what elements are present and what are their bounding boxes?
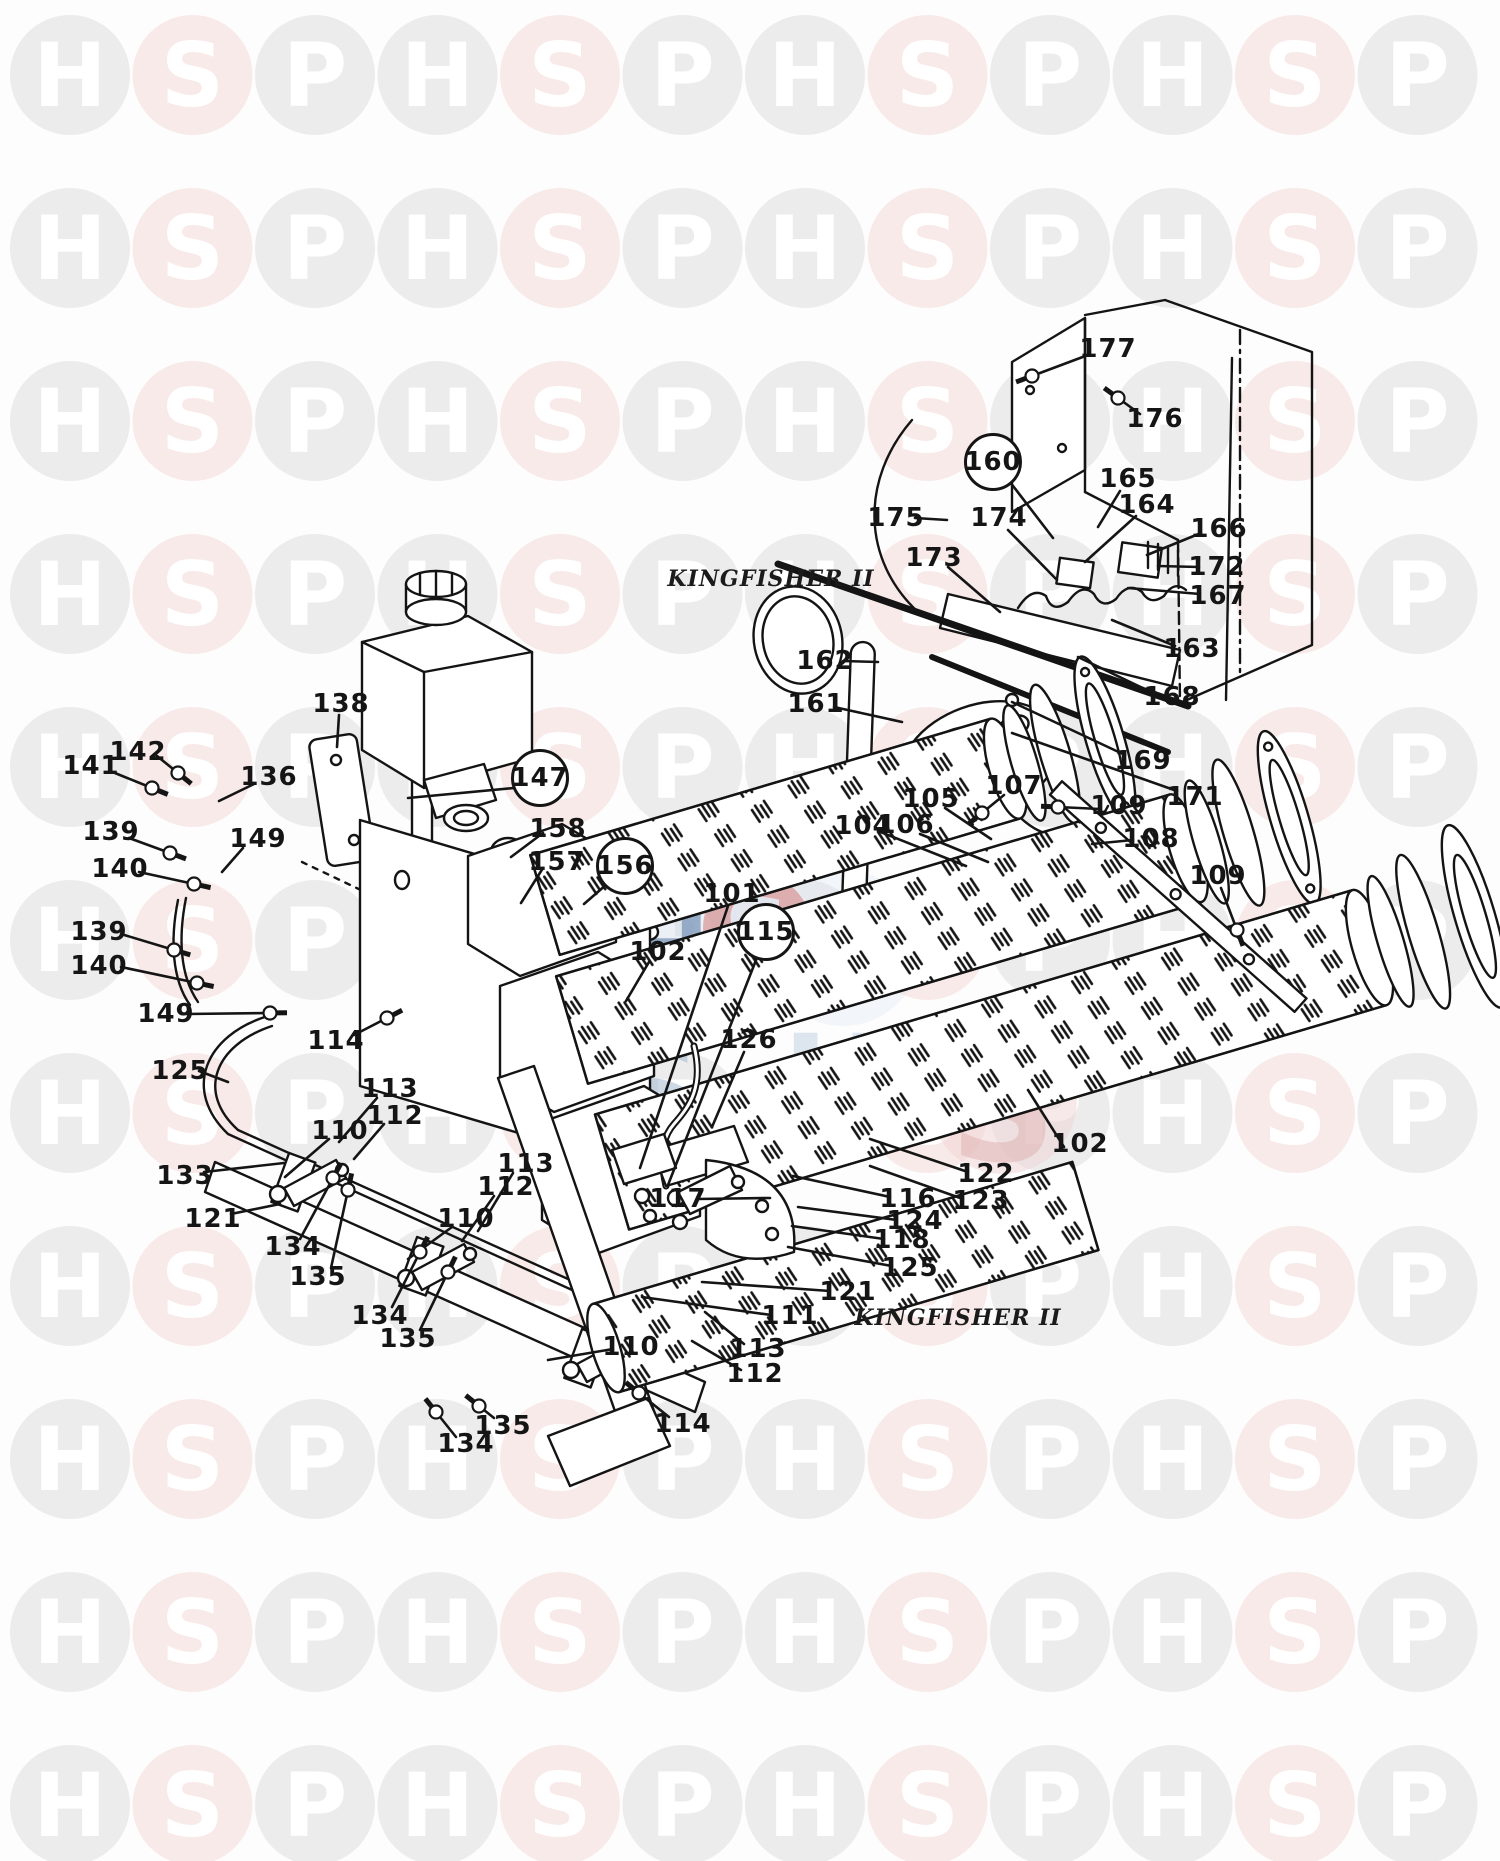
fastener-shaft [158, 791, 167, 795]
part-callout-157: 157 [528, 849, 585, 875]
fastener-glyph [1026, 370, 1039, 383]
leader-line [626, 962, 649, 1001]
fastener-shaft [181, 952, 191, 955]
leader-line [121, 934, 174, 950]
part-callout-173: 173 [905, 545, 962, 571]
part-callout-109: 109 [1090, 793, 1147, 819]
fastener-glyph [633, 1387, 646, 1400]
fastener-shaft [183, 777, 191, 783]
leader-line [702, 1282, 830, 1291]
part-callout-138: 138 [312, 691, 369, 717]
fastener-shaft [393, 1010, 402, 1015]
part-callout-122: 122 [957, 1161, 1014, 1187]
part-callout-107: 107 [985, 773, 1042, 799]
part-callout-147: 147 [511, 749, 569, 807]
part-callout-117: 117 [649, 1186, 706, 1212]
part-callout-162: 162 [796, 648, 853, 674]
part-callout-140: 140 [91, 856, 148, 882]
leader-line [793, 1176, 890, 1197]
fastener-shaft [425, 1399, 431, 1407]
part-callout-165: 165 [1099, 466, 1156, 492]
part-callout-149: 149 [137, 1001, 194, 1027]
part-callout-141: 141 [62, 753, 119, 779]
part-callout-139: 139 [82, 819, 139, 845]
part-callout-134: 134 [264, 1234, 321, 1260]
part-callout-111: 111 [761, 1303, 818, 1329]
leader-line [204, 1163, 284, 1172]
leader-line [668, 955, 758, 1185]
part-callout-102: 102 [629, 939, 686, 965]
fastener-shaft [466, 1395, 474, 1401]
part-callout-118: 118 [873, 1227, 930, 1253]
leader-line [408, 788, 514, 798]
part-callout-136: 136 [240, 764, 297, 790]
part-callout-135: 135 [289, 1264, 346, 1290]
fastener-shaft [969, 817, 977, 823]
leader-line [337, 715, 339, 747]
part-callout-126: 126 [720, 1027, 777, 1053]
part-callout-134: 134 [437, 1431, 494, 1457]
fastener-glyph [1231, 924, 1244, 937]
fastener-shaft [201, 885, 211, 887]
model-title-bottom: KINGFISHER II [854, 1305, 1061, 1331]
fastener-glyph [188, 878, 201, 891]
part-callout-121: 121 [184, 1206, 241, 1232]
leader-line [584, 884, 607, 904]
fastener-shaft [1104, 388, 1112, 394]
part-callout-108: 108 [1122, 826, 1179, 852]
leader-line [1012, 702, 1125, 755]
part-callout-114: 114 [654, 1411, 711, 1437]
fastener-glyph [1052, 801, 1065, 814]
fastener-glyph [430, 1406, 443, 1419]
leader-line [1098, 491, 1120, 527]
fastener-glyph [1112, 392, 1125, 405]
parts-diagram-page: HSPHSPHSPHSPHSPHSPHSPHSPHSPHSPHSPHSPHSPH… [0, 0, 1500, 1861]
part-callout-110: 110 [311, 1118, 368, 1144]
fastener-glyph [191, 977, 204, 990]
leader-line [121, 967, 197, 983]
fastener-glyph [381, 1012, 394, 1025]
part-callout-115: 115 [737, 903, 795, 961]
part-callout-135: 135 [379, 1326, 436, 1352]
part-callout-112: 112 [366, 1103, 423, 1129]
part-callout-176: 176 [1126, 406, 1183, 432]
part-callout-167: 167 [1189, 583, 1246, 609]
fastener-glyph [146, 782, 159, 795]
part-callout-174: 174 [970, 505, 1027, 531]
leader-line [698, 1198, 770, 1199]
fastener-shaft [336, 1163, 341, 1172]
part-callout-125: 125 [151, 1058, 208, 1084]
fastener-glyph [264, 1007, 277, 1020]
part-callout-112: 112 [726, 1361, 783, 1387]
leader-line [420, 1272, 448, 1330]
leader-line [392, 1252, 420, 1307]
part-callout-166: 166 [1190, 516, 1247, 542]
part-callout-101: 101 [703, 881, 760, 907]
leader-line [186, 1013, 270, 1014]
part-callout-113: 113 [361, 1076, 418, 1102]
part-callout-149: 149 [229, 826, 286, 852]
part-callout-160: 160 [964, 433, 1022, 491]
part-callout-105: 105 [902, 786, 959, 812]
leader-line [300, 1178, 333, 1239]
fastener-glyph [342, 1184, 355, 1197]
fastener-glyph [442, 1266, 455, 1279]
part-callout-168: 168 [1143, 684, 1200, 710]
part-callout-106: 106 [877, 812, 934, 838]
part-callout-158: 158 [529, 816, 586, 842]
part-callout-172: 172 [1188, 554, 1245, 580]
leader-line [870, 1139, 968, 1172]
part-callout-102: 102 [1051, 1131, 1108, 1157]
leader-line [948, 567, 1000, 612]
part-callout-133: 133 [156, 1163, 213, 1189]
part-callout-125: 125 [881, 1255, 938, 1281]
leader-line [1008, 530, 1057, 580]
fastener-glyph [164, 847, 177, 860]
leader-line [1085, 516, 1136, 562]
part-callout-110: 110 [437, 1206, 494, 1232]
fastener-glyph [172, 767, 185, 780]
fastener-shaft [177, 855, 186, 858]
part-callout-156: 156 [596, 837, 654, 895]
part-callout-139: 139 [70, 919, 127, 945]
leader-line [331, 1190, 348, 1268]
leader-line [792, 1226, 884, 1239]
fastener-shaft [626, 1382, 634, 1388]
fastener-glyph [327, 1172, 340, 1185]
part-callout-177: 177 [1079, 336, 1136, 362]
fastener-shaft [1016, 378, 1025, 382]
part-callout-121: 121 [819, 1279, 876, 1305]
fastener-shaft [204, 984, 214, 986]
fastener-glyph [414, 1246, 427, 1259]
fastener-shaft [349, 1173, 351, 1183]
fastener-glyph [168, 944, 181, 957]
part-callout-164: 164 [1118, 492, 1175, 518]
part-callout-110: 110 [602, 1334, 659, 1360]
part-callout-161: 161 [787, 691, 844, 717]
part-callout-109: 109 [1189, 863, 1246, 889]
fastener-shaft [1239, 937, 1243, 946]
part-callout-113: 113 [497, 1151, 554, 1177]
part-callout-123: 123 [952, 1188, 1009, 1214]
part-callout-169: 169 [1114, 748, 1171, 774]
part-callout-163: 163 [1163, 636, 1220, 662]
model-title-top: KINGFISHER II [667, 566, 874, 592]
part-callout-114: 114 [307, 1028, 364, 1054]
part-callout-140: 140 [70, 953, 127, 979]
fastener-shaft [451, 1257, 455, 1266]
fastener-glyph [976, 807, 989, 820]
part-callout-175: 175 [867, 505, 924, 531]
part-callout-171: 171 [1166, 784, 1223, 810]
